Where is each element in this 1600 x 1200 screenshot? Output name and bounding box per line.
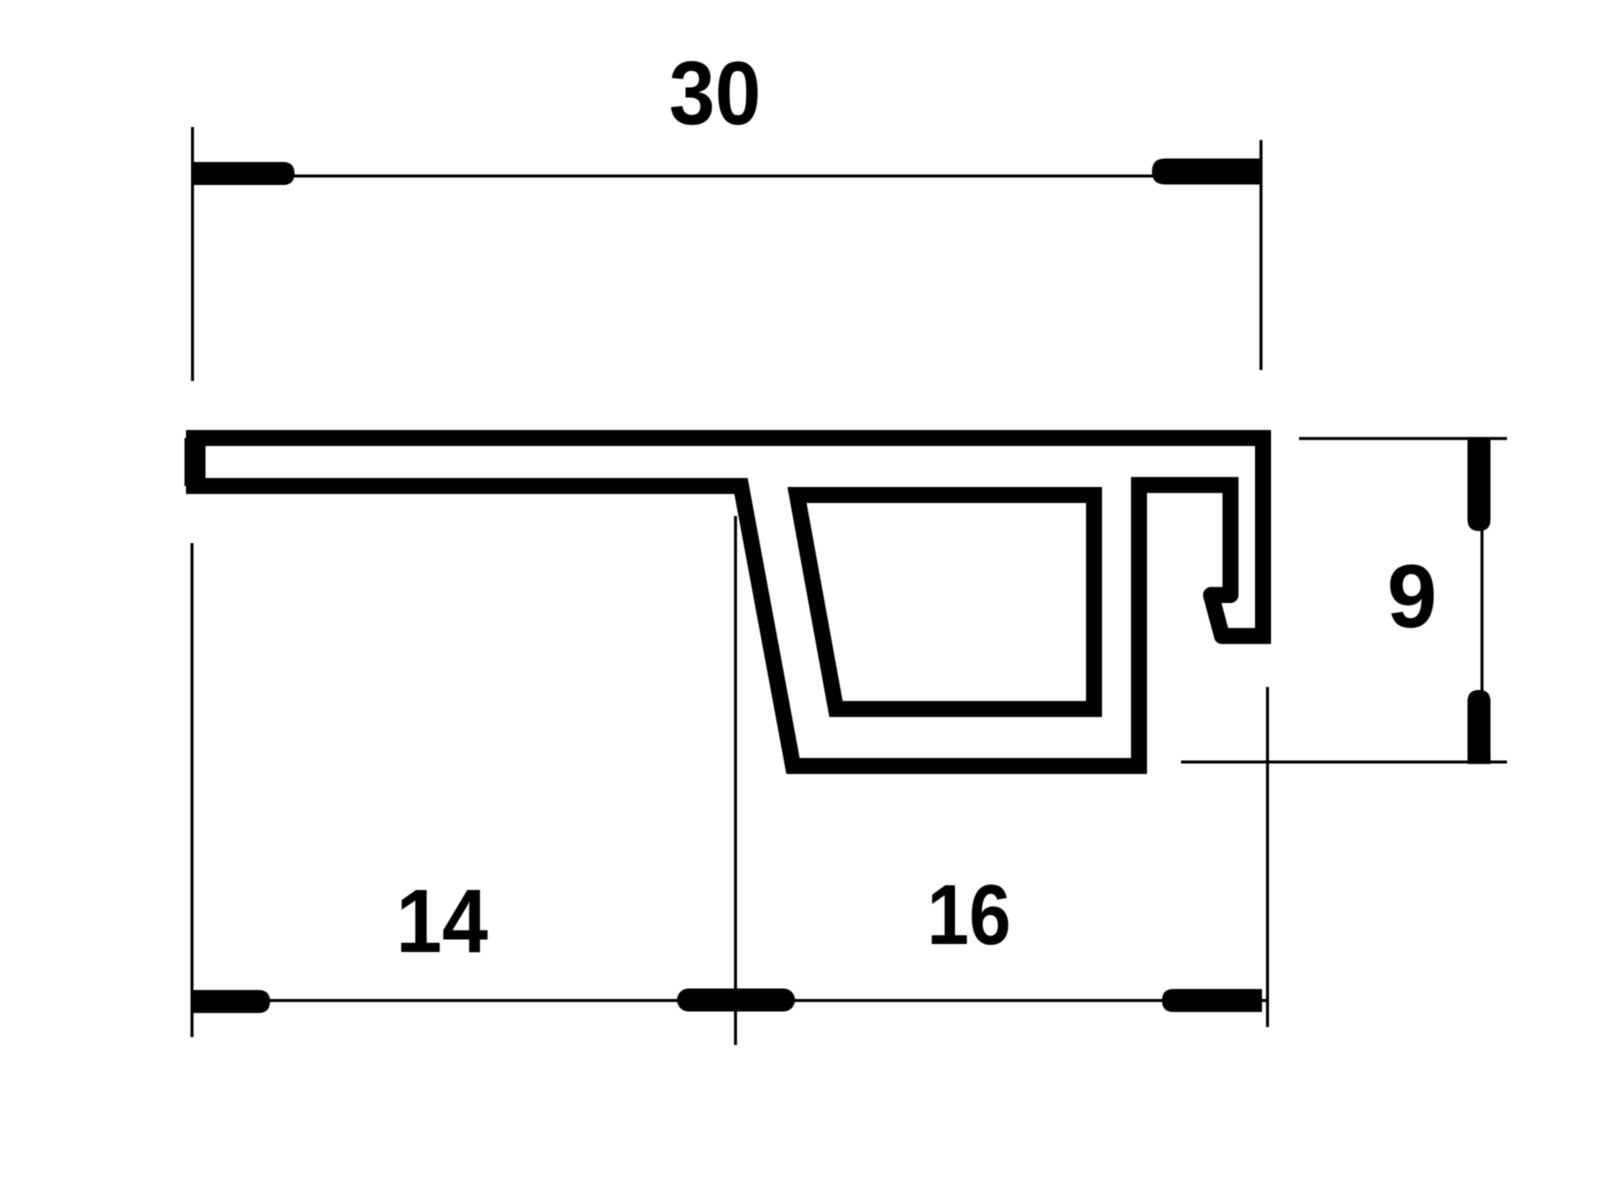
svg-text:30: 30 [669,44,761,144]
svg-text:16: 16 [927,868,1011,963]
svg-text:14: 14 [396,872,488,972]
svg-text:9: 9 [1387,547,1437,647]
